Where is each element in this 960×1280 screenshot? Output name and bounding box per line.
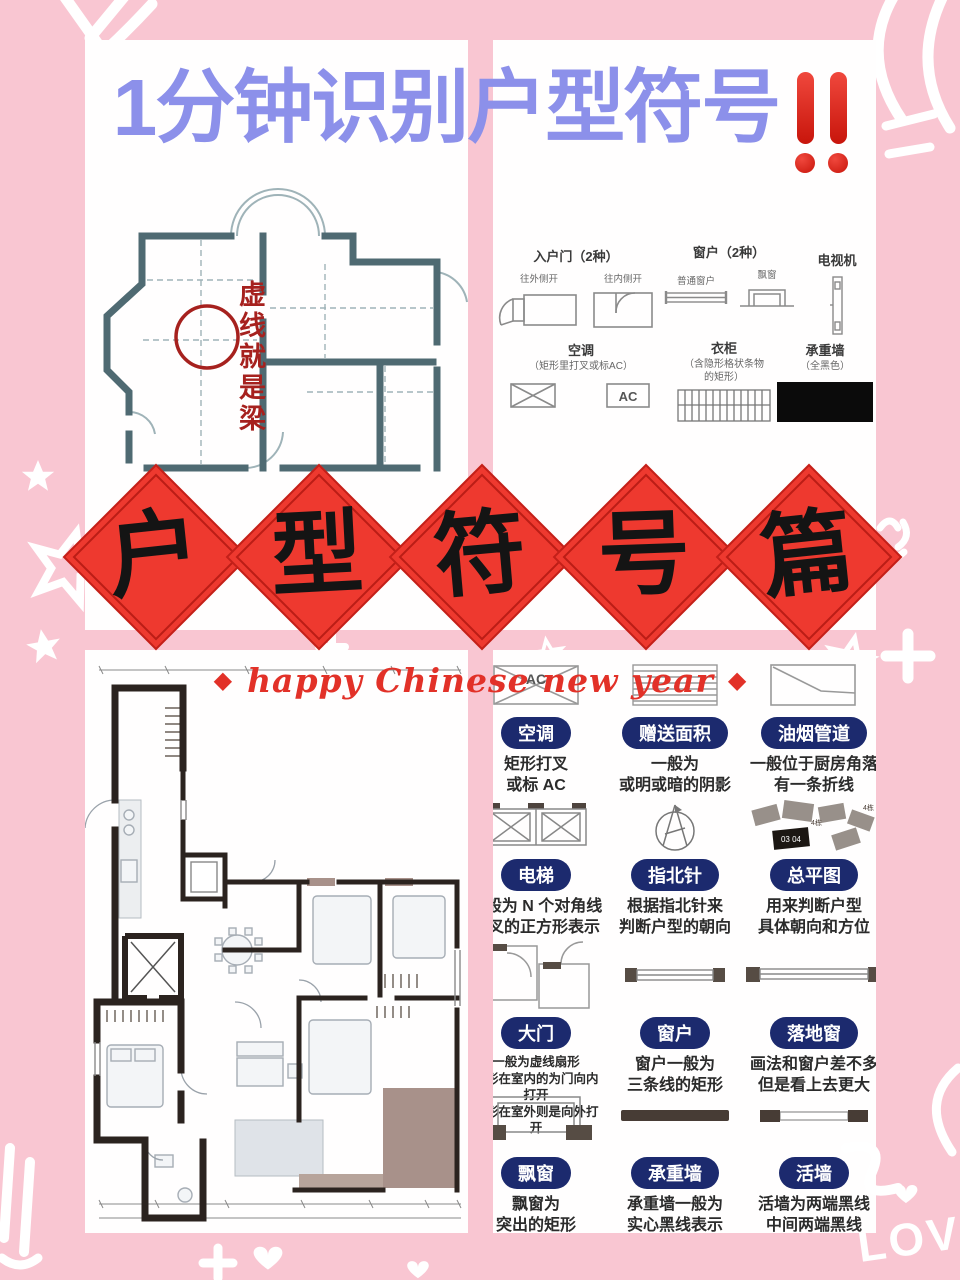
legend-door-inward-label: 往内侧开	[604, 271, 642, 285]
label-pill: 落地窗	[770, 1017, 858, 1049]
triple-line-window-icon	[625, 963, 725, 987]
legend-entry-door-group: 入户门（2种） 往外侧开 往内侧开	[497, 246, 655, 330]
legend-wardrobe-note: （含隐形格状条物 的矩形）	[669, 359, 779, 384]
wide-triple-line-window-icon	[746, 963, 876, 987]
legend-bearing-wall-group: 承重墙 （全黑色）	[776, 340, 874, 427]
legend-window-normal-label: 普通窗户	[677, 273, 715, 287]
banner-char: 篇	[736, 486, 878, 625]
double-exclamation-icon	[795, 72, 848, 173]
label-pill: 电梯	[501, 859, 571, 891]
legend-tv-group: 电视机	[807, 250, 867, 342]
legend-ac-title: 空调	[507, 340, 655, 359]
legend-entry-door-title: 入户门（2种）	[497, 246, 655, 265]
greeting-line: ◆happy Chinese new year◆	[85, 661, 876, 700]
banner-char: 号	[577, 490, 711, 620]
legend-ac-note: （矩形里打叉或标AC）	[507, 361, 655, 374]
legend-tv-title: 电视机	[807, 250, 867, 269]
label-pill: 大门	[501, 1017, 571, 1049]
legend-window-title: 窗户（2种）	[663, 242, 795, 261]
banner-char: 符	[410, 487, 550, 624]
label-pill: 指北针	[631, 859, 719, 891]
bay-window-legend-icon	[740, 284, 794, 312]
door-arc-boxes-icon	[493, 936, 595, 1014]
compass-arrow-icon	[648, 797, 702, 855]
site-plan-building-tag: 4栋	[863, 803, 874, 812]
diamond-bullet-icon: ◆	[214, 666, 233, 694]
black-end-bar-icon	[758, 1107, 870, 1125]
legend-ac-group: 空调 （矩形里打叉或标AC） AC	[507, 340, 655, 415]
greeting-text: happy Chinese new year	[247, 661, 714, 700]
diamond-bullet-icon: ◆	[728, 666, 747, 694]
symbol-grid-panel: AC 空调 矩形打叉 或标 AC 赠送面积 一般为 或明或暗的阴影	[493, 650, 876, 1233]
bearing-wall-legend-icon	[777, 382, 873, 422]
grid-row-4: 飘窗 飘窗为 突出的矩形 承重墙 承重墙一般为 实心黑线表示 不可拆除 活墙 活…	[493, 1078, 876, 1233]
ac-legend-icon: AC	[509, 382, 653, 410]
site-plan-cluster-icon: 03 04 4栋 4栋	[749, 797, 876, 855]
beam-annotation-text: 虚线就是梁	[231, 280, 270, 435]
label-pill: 活墙	[779, 1157, 849, 1189]
elevator-shaft	[125, 936, 181, 998]
site-plan-unit-tag: 03 04	[781, 835, 802, 844]
site-plan-building-tag: 4栋	[811, 818, 822, 827]
wardrobe-icon	[677, 389, 771, 422]
door-outward-icon	[498, 288, 580, 330]
symbol-cell-elevator: 电梯 一般为 N 个对角线 交叉的正方形表示	[493, 796, 603, 938]
banner-char: 型	[249, 489, 385, 622]
elevator-crossed-squares-icon	[493, 801, 588, 851]
bay-window-protrusion-icon	[493, 1085, 594, 1147]
label-pill: 油烟管道	[761, 717, 867, 749]
beam-annotation-circle	[176, 306, 238, 368]
page-header: 1分钟识别户型符号	[85, 58, 876, 173]
detail-floorplan-drawing	[85, 650, 468, 1233]
detail-floorplan-panel	[85, 650, 468, 1233]
label-pill: 窗户	[640, 1017, 710, 1049]
label-pill: 赠送面积	[622, 717, 728, 749]
symbol-cell-bay-window: 飘窗 飘窗为 突出的矩形	[493, 1078, 603, 1233]
normal-window-icon	[664, 290, 728, 306]
legend-window-group: 窗户（2种） 普通窗户 飘窗	[663, 242, 795, 312]
page-title: 1分钟识别户型符号	[113, 58, 780, 158]
legend-wardrobe-group: 衣柜 （含隐形格状条物 的矩形）	[669, 338, 779, 427]
label-pill: 空调	[501, 717, 571, 749]
symbol-cell-movable-wall: 活墙 活墙为两端黑线 中间两端黑线	[747, 1078, 876, 1233]
label-pill: 总平图	[770, 859, 858, 891]
symbol-cell-compass: 指北针 根据指北针来 判断户型的朝向	[608, 796, 742, 938]
legend-door-outward-label: 往外侧开	[520, 271, 558, 285]
banner-char: 户	[83, 486, 225, 625]
legend-wardrobe-title: 衣柜	[669, 338, 779, 357]
legend-bearing-wall-title: 承重墙	[776, 340, 874, 359]
tv-icon	[830, 275, 844, 337]
legend-window-bay-label: 飘窗	[757, 267, 776, 281]
infographic-page: { "colors": { "background_pink": "#f9c6d…	[0, 0, 960, 1280]
symbol-cell-site-plan: 03 04 4栋 4栋 总平图 用来判断户型 具体朝向和方位	[747, 796, 876, 938]
solid-black-bar-icon	[619, 1107, 731, 1125]
label-pill: 承重墙	[631, 1157, 719, 1189]
door-inward-icon	[592, 288, 654, 330]
grid-row-2: 电梯 一般为 N 个对角线 交叉的正方形表示 指北针 根据指北针来 判断户型的朝…	[493, 796, 876, 938]
label-pill: 飘窗	[501, 1157, 571, 1189]
symbol-cell-bearing-wall: 承重墙 承重墙一般为 实心黑线表示 不可拆除	[608, 1078, 742, 1233]
ac-text: AC	[619, 389, 638, 404]
legend-bearing-wall-note: （全黑色）	[776, 361, 874, 374]
